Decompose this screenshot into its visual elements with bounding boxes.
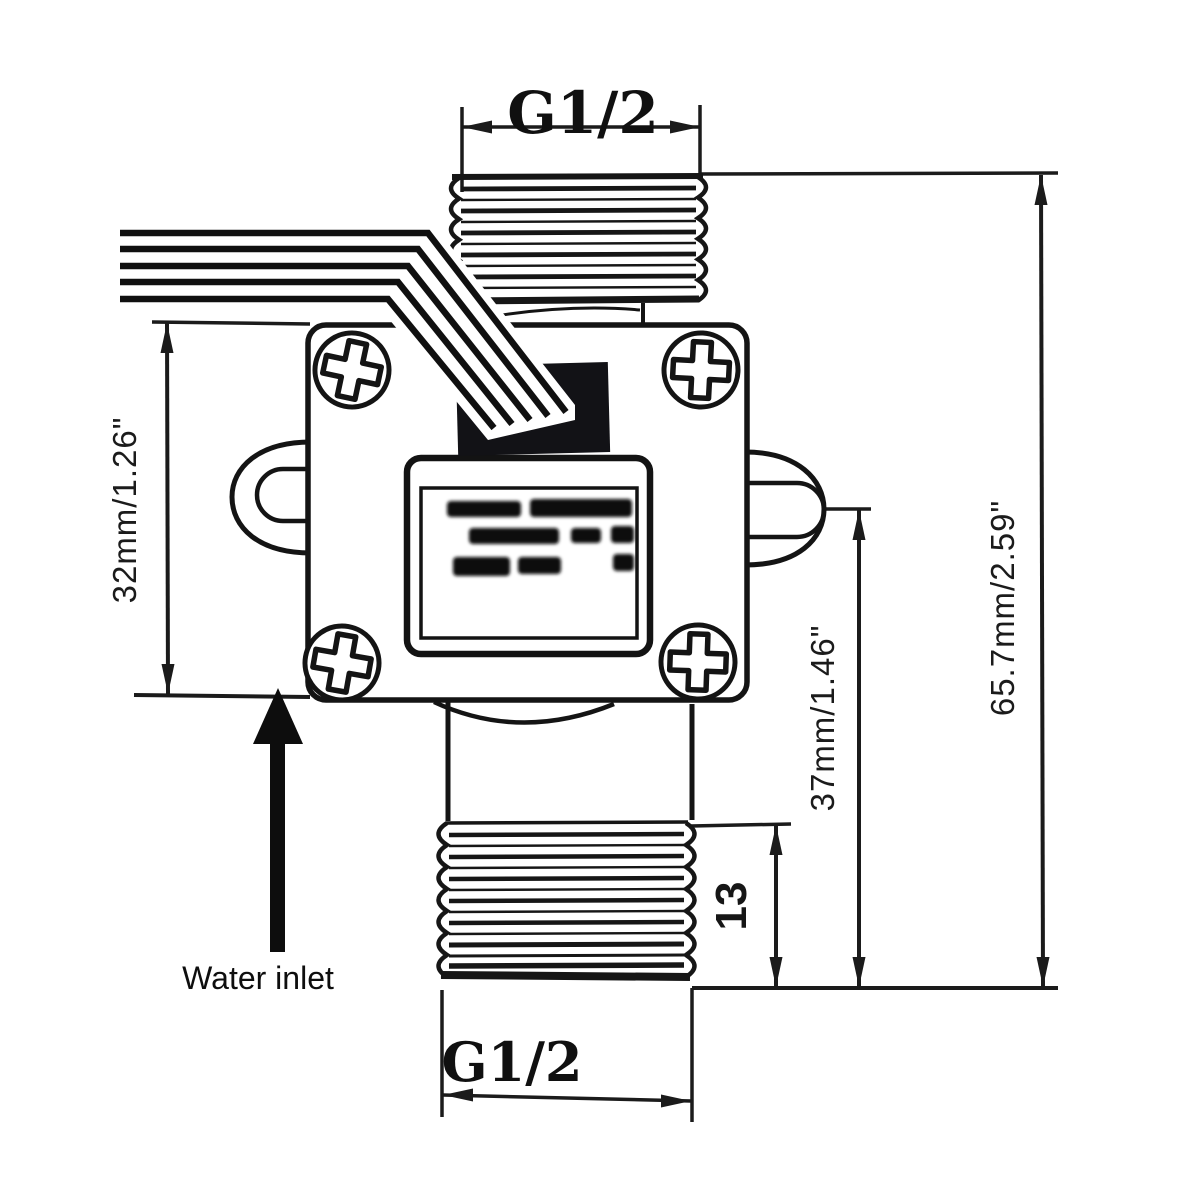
up-arrow-icon [270, 738, 285, 952]
bottom-thread-left-crests [439, 823, 448, 977]
bottom-thread [439, 822, 695, 977]
diagram-svg: G1/2 G1/2 32mm/1.26" 37mm/1.46" 13 65.7m… [0, 0, 1200, 1200]
label-top-port: G1/2 [507, 79, 658, 147]
top-thread-right-crests [698, 177, 706, 301]
left-mounting-ear [232, 442, 311, 553]
right-mounting-ear [745, 452, 824, 565]
dim-label-overall-height: 65.7mm/2.59" [984, 500, 1021, 716]
dim-label-bottom-thread-length: 13 [707, 882, 756, 931]
bottom-thread-right-crests [686, 823, 695, 977]
phillips-screw-icon-top-right [662, 331, 740, 409]
label-water-inlet: Water inlet [182, 960, 334, 996]
water-inlet-arrow [253, 688, 303, 952]
bottom-boss-arc [434, 702, 614, 723]
phillips-screw-icon-bottom-right [660, 624, 737, 701]
dim-label-port-center-to-base: 37mm/1.46" [804, 625, 841, 812]
dim-label-body-height: 32mm/1.26" [106, 417, 143, 604]
label-bottom-port: G1/2 [442, 1030, 583, 1094]
top-thread [451, 176, 706, 302]
nameplate [407, 458, 650, 654]
flow-sensor-dimension-diagram: G1/2 G1/2 32mm/1.26" 37mm/1.46" 13 65.7m… [0, 0, 1200, 1200]
